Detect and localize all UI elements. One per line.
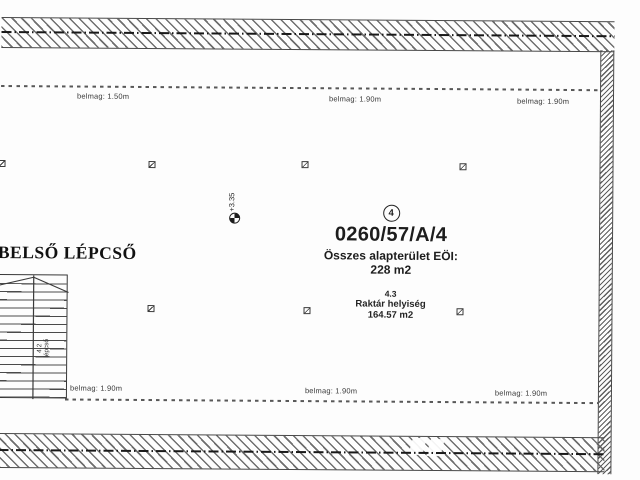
bottom-wall	[0, 433, 605, 472]
floor-plan-canvas: belmag: 1.50m belmag: 1.90m belmag: 1.90…	[0, 0, 640, 480]
bottom-wall-centerline	[0, 448, 605, 454]
height-label: belmag: 1.50m	[77, 92, 129, 101]
height-label: belmag: 1.90m	[495, 388, 547, 397]
right-wall	[597, 50, 613, 474]
lower-height-boundary-line	[65, 398, 599, 403]
room-name: Raktár helyiség	[355, 298, 425, 309]
staircase-name: lépcső	[43, 339, 50, 358]
unit-number-badge: 4	[383, 205, 400, 222]
top-wall	[1, 17, 614, 52]
level-value-label: +3.35	[227, 193, 236, 212]
staircase-drawing	[0, 274, 68, 399]
height-label: belmag: 1.90m	[517, 97, 569, 106]
level-marker-icon	[229, 213, 240, 224]
height-label: belmag: 1.90m	[329, 94, 381, 103]
height-label: belmag: 1.90m	[70, 383, 122, 392]
floor-plan: belmag: 1.50m belmag: 1.90m belmag: 1.90…	[0, 0, 640, 480]
hatched-square-icon	[0, 160, 6, 167]
height-label: belmag: 1.90m	[305, 386, 357, 395]
staircase-title: BELSŐ LÉPCSŐ	[0, 242, 137, 264]
total-area-value: 228 m2	[370, 263, 411, 277]
total-area-label: Összes alapterület EÖI:	[324, 248, 458, 263]
room-code: 4.3	[355, 288, 425, 298]
top-wall-centerline	[1, 31, 614, 37]
room-info: 4.3 Raktár helyiség 164.57 m2	[355, 288, 425, 320]
unit-info-block: 4 0260/57/A/4 Összes alapterület EÖI: 22…	[290, 204, 491, 321]
staircase-code: 4.2	[36, 344, 43, 353]
hatched-square-icon	[302, 161, 309, 168]
hatched-square-icon	[149, 161, 156, 168]
hatched-square-icon	[148, 305, 155, 312]
staircase-label: 4.2 lépcső	[35, 326, 51, 370]
room-area: 164.57 m2	[355, 309, 425, 320]
hatched-square-icon	[459, 163, 466, 170]
upper-height-boundary-line	[1, 85, 601, 91]
parcel-id: 0260/57/A/4	[335, 222, 447, 247]
